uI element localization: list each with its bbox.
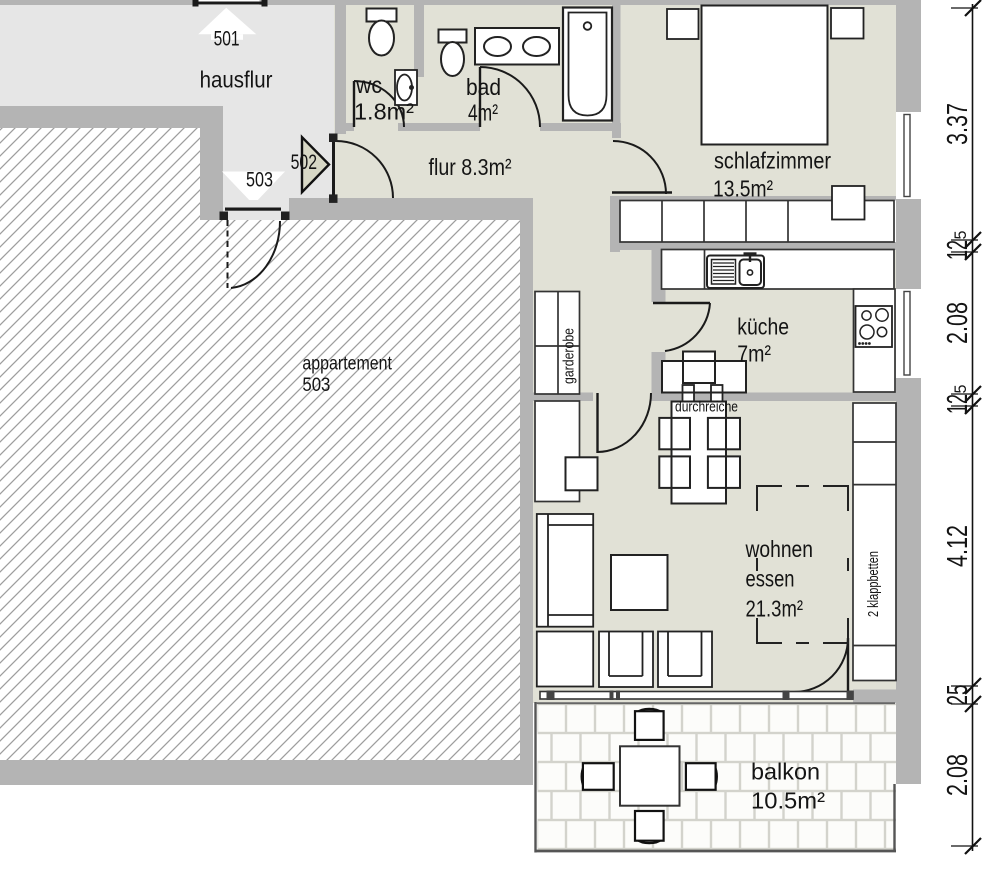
svg-text:7m²: 7m² (737, 341, 771, 367)
svg-text:balkon: balkon (751, 759, 820, 785)
svg-text:durchreiche: durchreiche (675, 399, 738, 416)
svg-text:12: 12 (942, 394, 974, 414)
svg-text:appartement: appartement (302, 354, 392, 375)
svg-text:4m²: 4m² (468, 100, 498, 126)
svg-text:25: 25 (942, 685, 974, 706)
svg-text:501: 501 (214, 27, 240, 51)
svg-text:2.08: 2.08 (942, 302, 974, 344)
svg-text:12: 12 (942, 240, 974, 260)
svg-text:10.5m²: 10.5m² (751, 788, 825, 814)
svg-text:essen: essen (746, 566, 795, 592)
svg-text:13.5m²: 13.5m² (713, 176, 773, 202)
svg-text:5: 5 (951, 385, 970, 394)
svg-text:garderobe: garderobe (561, 328, 578, 384)
svg-text:3.37: 3.37 (942, 103, 974, 145)
svg-text:2.08: 2.08 (942, 754, 974, 796)
svg-text:schlafzimmer: schlafzimmer (714, 148, 831, 174)
svg-text:flur 8.3m²: flur 8.3m² (429, 154, 512, 180)
svg-text:2 klappbetten: 2 klappbetten (865, 551, 882, 617)
svg-text:1.8m²: 1.8m² (354, 99, 414, 125)
svg-text:bad: bad (466, 74, 501, 100)
svg-text:503: 503 (246, 168, 273, 192)
svg-text:4.12: 4.12 (942, 525, 974, 567)
svg-text:küche: küche (737, 314, 789, 340)
svg-text:wohnen: wohnen (745, 536, 813, 562)
svg-text:hausflur: hausflur (200, 67, 273, 93)
svg-text:5: 5 (951, 231, 970, 240)
svg-text:502: 502 (291, 150, 317, 174)
svg-text:503: 503 (302, 375, 330, 396)
svg-text:wc: wc (355, 72, 382, 98)
svg-text:21.3m²: 21.3m² (746, 596, 804, 622)
